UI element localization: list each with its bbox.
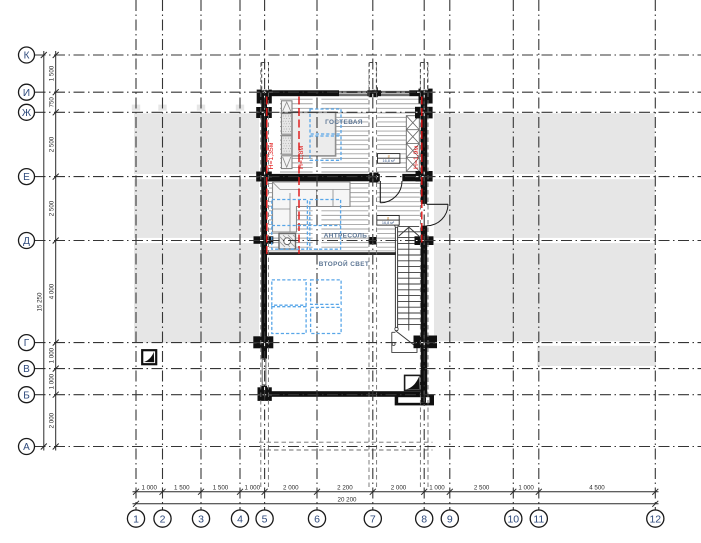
svg-text:2 000: 2 000 <box>391 485 407 492</box>
svg-text:15 250: 15 250 <box>37 292 44 311</box>
svg-text:9: 9 <box>447 513 453 525</box>
svg-text:750: 750 <box>49 97 56 108</box>
svg-text:Е: Е <box>23 172 30 183</box>
svg-text:2 500: 2 500 <box>49 200 56 216</box>
svg-text:1 000: 1 000 <box>141 485 157 492</box>
svg-text:1 000: 1 000 <box>49 373 56 389</box>
svg-text:16,8 м²: 16,8 м² <box>383 159 396 163</box>
svg-text:2 000: 2 000 <box>283 485 299 492</box>
svg-text:6: 6 <box>314 513 320 525</box>
svg-text:В: В <box>23 364 30 375</box>
svg-text:2: 2 <box>160 513 166 525</box>
svg-text:1 000: 1 000 <box>518 485 534 492</box>
svg-text:1 000: 1 000 <box>49 347 56 363</box>
svg-text:8: 8 <box>387 216 389 220</box>
svg-text:Ж: Ж <box>22 108 32 119</box>
svg-text:2 000: 2 000 <box>49 412 56 428</box>
svg-text:H=1,9м: H=1,9м <box>413 146 420 169</box>
svg-text:АНТРЕСОЛЬ: АНТРЕСОЛЬ <box>324 232 368 239</box>
svg-text:2 500: 2 500 <box>49 136 56 152</box>
svg-text:8: 8 <box>388 155 390 159</box>
svg-text:4 500: 4 500 <box>589 485 605 492</box>
svg-text:20 200: 20 200 <box>338 497 357 504</box>
svg-text:1 500: 1 500 <box>49 65 56 81</box>
svg-text:7: 7 <box>370 513 376 525</box>
svg-text:К: К <box>24 51 30 62</box>
svg-text:H=1,35м: H=1,35м <box>268 142 275 169</box>
svg-text:3: 3 <box>198 513 204 525</box>
svg-text:1 500: 1 500 <box>174 485 190 492</box>
svg-text:4 000: 4 000 <box>49 283 56 299</box>
svg-text:2 500: 2 500 <box>474 485 490 492</box>
svg-text:Г: Г <box>24 338 30 349</box>
svg-text:1: 1 <box>133 513 139 525</box>
svg-text:1 000: 1 000 <box>245 485 261 492</box>
svg-text:ГОСТЕВАЯ: ГОСТЕВАЯ <box>325 119 363 126</box>
svg-text:1 000: 1 000 <box>429 485 445 492</box>
svg-text:5: 5 <box>262 513 268 525</box>
svg-text:И: И <box>23 88 30 99</box>
svg-text:4: 4 <box>237 513 243 525</box>
svg-text:А: А <box>23 442 30 453</box>
svg-text:ВТОРОЙ СВЕТ: ВТОРОЙ СВЕТ <box>319 259 369 268</box>
svg-text:8: 8 <box>421 513 427 525</box>
svg-text:12: 12 <box>649 513 661 525</box>
svg-text:10: 10 <box>507 513 519 525</box>
svg-text:11: 11 <box>533 513 544 525</box>
svg-text:16,8 м²: 16,8 м² <box>382 221 395 225</box>
svg-text:1 500: 1 500 <box>213 485 229 492</box>
svg-text:H=1,8м: H=1,8м <box>298 146 305 169</box>
svg-text:Б: Б <box>23 390 30 401</box>
svg-text:2 200: 2 200 <box>337 485 353 492</box>
svg-text:Д: Д <box>23 236 30 247</box>
